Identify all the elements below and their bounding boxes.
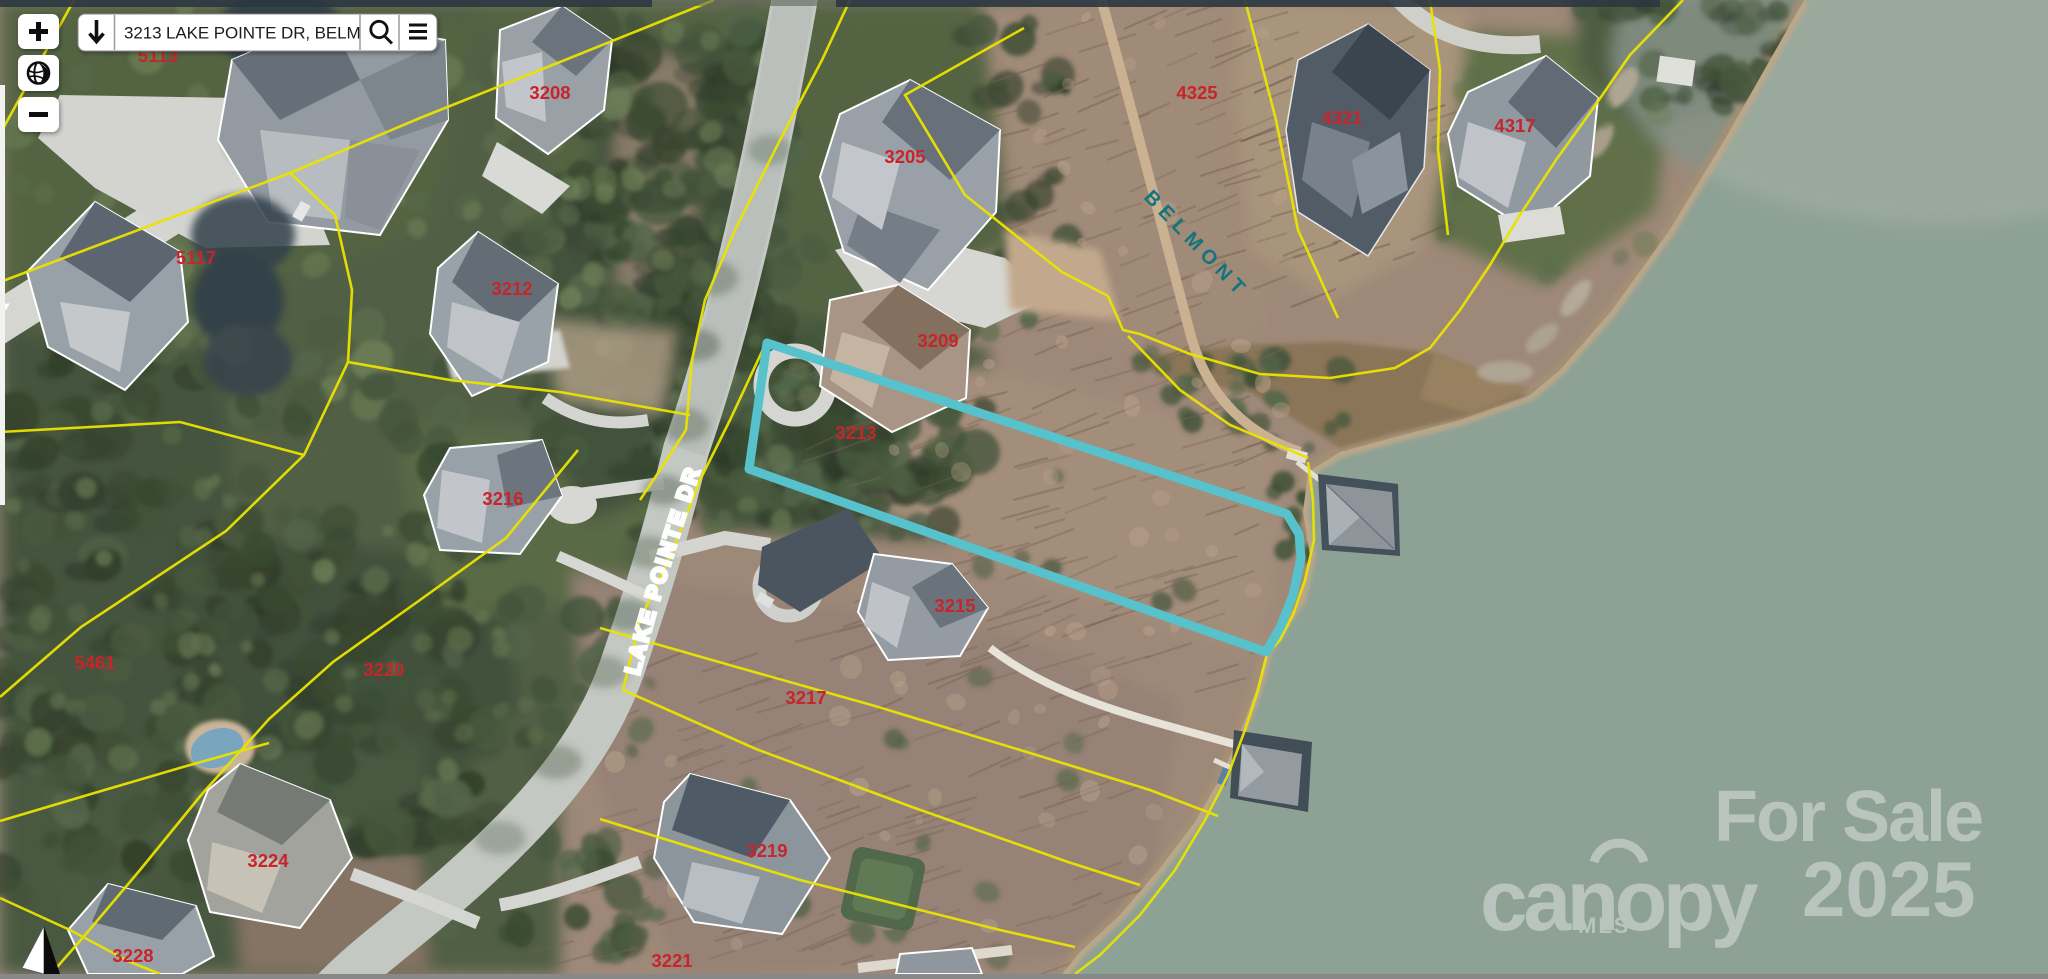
svg-text:3213: 3213 bbox=[835, 422, 876, 443]
svg-text:3224: 3224 bbox=[247, 850, 289, 871]
svg-text:3213 LAKE POINTE DR, BELM: 3213 LAKE POINTE DR, BELM bbox=[124, 24, 361, 43]
svg-text:5461: 5461 bbox=[74, 652, 115, 673]
svg-text:3212: 3212 bbox=[491, 278, 532, 299]
svg-text:3208: 3208 bbox=[529, 82, 570, 103]
svg-text:3215: 3215 bbox=[934, 595, 975, 616]
svg-text:3221: 3221 bbox=[651, 950, 692, 971]
svg-text:4317: 4317 bbox=[1494, 115, 1535, 136]
svg-text:3228: 3228 bbox=[112, 945, 153, 966]
svg-text:MLS: MLS bbox=[1578, 913, 1630, 938]
svg-text:3209: 3209 bbox=[917, 330, 958, 351]
svg-text:3217: 3217 bbox=[785, 687, 826, 708]
svg-text:4321: 4321 bbox=[1321, 107, 1362, 128]
svg-text:3205: 3205 bbox=[884, 146, 925, 167]
svg-text:4325: 4325 bbox=[1176, 82, 1217, 103]
svg-text:2025: 2025 bbox=[1802, 845, 1976, 933]
svg-text:3216: 3216 bbox=[482, 488, 523, 509]
svg-text:3220: 3220 bbox=[363, 659, 404, 680]
svg-text:5117: 5117 bbox=[176, 247, 216, 268]
svg-text:3219: 3219 bbox=[746, 840, 787, 861]
